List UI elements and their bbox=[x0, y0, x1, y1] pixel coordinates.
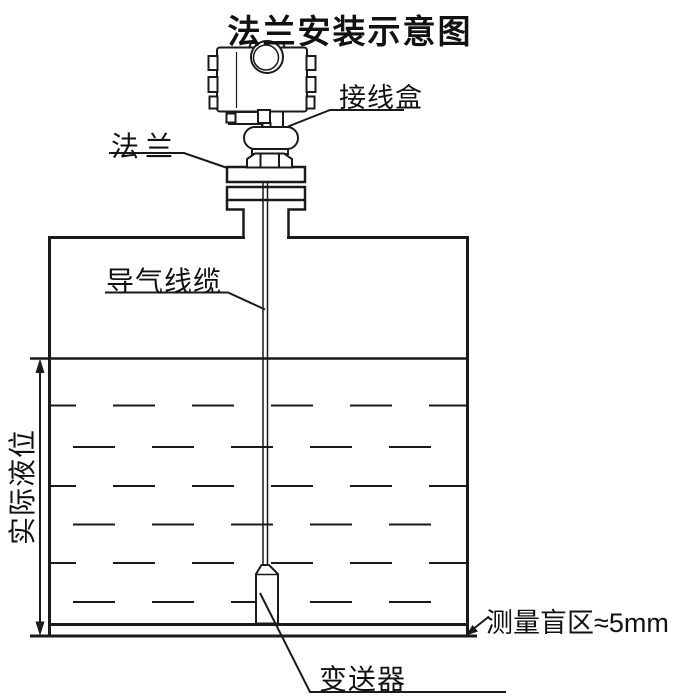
gasket-plate bbox=[227, 187, 305, 200]
flange-plate bbox=[227, 167, 305, 182]
cable-line bbox=[263, 183, 268, 566]
probe-drawing bbox=[256, 565, 278, 624]
label-air-cable: 导气线缆 bbox=[106, 260, 222, 300]
tank-outline bbox=[30, 236, 477, 637]
label-actual-level: 实际液位 bbox=[1, 429, 41, 545]
diagram-page: 法兰安装示意图 接线盒 法兰 导气线缆 实际液位 测量盲区≈5mm 变送器 bbox=[0, 0, 700, 700]
diagram-title: 法兰安装示意图 bbox=[0, 5, 700, 53]
hex-nut bbox=[247, 154, 292, 168]
label-transmitter: 变送器 bbox=[319, 658, 406, 698]
mounting-neck bbox=[227, 167, 305, 237]
transmitter-head-drawing bbox=[209, 41, 316, 168]
label-junction-box: 接线盒 bbox=[339, 76, 423, 115]
label-blind-zone: 测量盲区≈5mm bbox=[486, 601, 669, 640]
label-flange: 法兰 bbox=[111, 125, 179, 165]
